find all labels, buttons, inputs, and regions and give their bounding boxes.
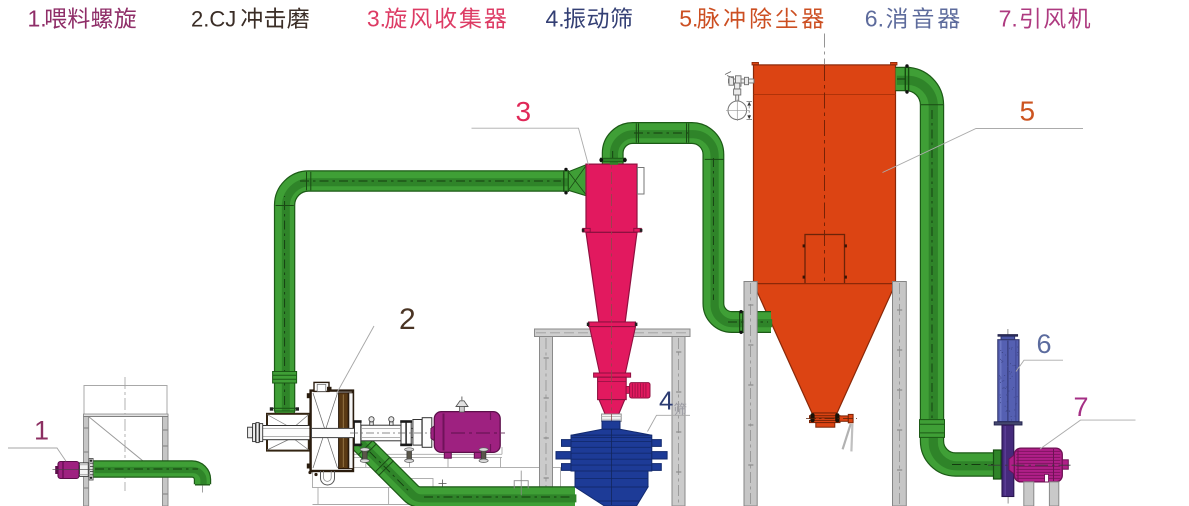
svg-text:2: 2 [399,303,416,336]
svg-text:7.: 7. [999,5,1018,31]
svg-text:5: 5 [1020,96,1036,127]
svg-text:2.CJ: 2.CJ [191,6,236,31]
svg-text:3: 3 [516,96,532,127]
svg-text:1.: 1. [28,5,47,31]
svg-text:4.: 4. [546,5,565,31]
svg-text:1: 1 [34,416,49,446]
svg-text:3.: 3. [367,5,386,31]
svg-text:7: 7 [1074,392,1089,422]
svg-text:6.: 6. [865,5,884,31]
svg-text:6: 6 [1037,329,1052,359]
svg-text:4: 4 [659,386,673,416]
svg-text:5.: 5. [679,5,698,31]
